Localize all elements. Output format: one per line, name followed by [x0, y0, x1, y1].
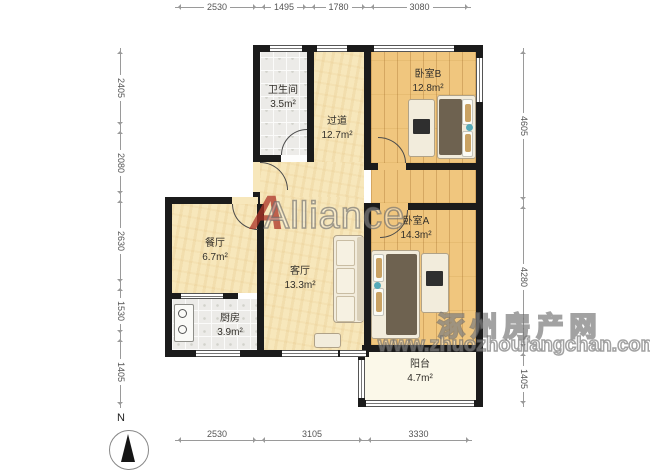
bedroom-b-cushion-1: [465, 104, 471, 122]
dim-left-4: 1530: [120, 285, 121, 336]
dim-left-1: 2405: [120, 48, 121, 128]
sofa-cushion-3: [336, 296, 355, 322]
dim-top-1: 2530: [175, 7, 259, 8]
alliance-watermark: Alliance: [264, 197, 405, 235]
bedroom-b-duvet: [439, 99, 462, 155]
bedroom-b-cushion-2: [465, 134, 471, 152]
dim-bottom-1: 2530: [175, 440, 259, 441]
kitchen-name: 厨房: [200, 312, 260, 326]
room-label-living: 客厅 13.3m²: [270, 265, 330, 293]
room-label-bedroom-b: 卧室B 12.8m²: [398, 68, 458, 96]
window-balcony-bottom: [366, 400, 474, 407]
dim-left-3-value: 2630: [116, 228, 126, 254]
hallway-name: 过道: [307, 115, 367, 129]
dim-top-2-value: 1495: [271, 2, 297, 12]
dim-top-4: 3080: [368, 7, 471, 8]
window-kitchen-bottom: [196, 350, 240, 357]
dim-left-5: 1405: [120, 336, 121, 408]
dim-right-3-value: 1405: [519, 365, 529, 391]
dim-bottom-3-value: 3330: [405, 429, 431, 439]
bedroom-b-door-opening: [378, 163, 406, 170]
bedroom-b-area: 12.8m²: [398, 82, 458, 96]
hallway-area: 12.7m²: [307, 129, 367, 143]
stove-burner-1: [178, 309, 187, 318]
bedroom-b-name: 卧室B: [398, 68, 458, 82]
bedroom-a-decor-dot: [374, 282, 381, 289]
bedroom-a-cushion-2: [376, 292, 382, 312]
floor-plan-canvas: 卫生间 3.5m² 过道 12.7m² 卧室B 12.8m² 卧室A 14.3m…: [0, 0, 650, 450]
dim-bottom-2-value: 3105: [299, 429, 325, 439]
room-label-hallway: 过道 12.7m²: [307, 115, 367, 143]
living-name: 客厅: [270, 265, 330, 279]
bedroom-b-decor-dot: [466, 124, 473, 131]
dim-left-3: 2630: [120, 197, 121, 285]
dim-bottom-3: 3330: [365, 440, 472, 441]
wall-kitchen-divider-right: [223, 293, 238, 299]
sofa-back: [357, 237, 364, 321]
dim-bottom-2: 3105: [259, 440, 365, 441]
dim-right-1: 4605: [523, 48, 524, 203]
bathroom-name: 卫生间: [253, 84, 313, 98]
balcony-area: 4.7m²: [390, 372, 450, 386]
dim-top-1-value: 2530: [204, 2, 230, 12]
sofa-cushion-1: [336, 240, 355, 266]
bedroom-b-tv: [413, 119, 430, 134]
dim-top-4-value: 3080: [406, 2, 432, 12]
wall-kitchen-divider-left: [172, 293, 181, 299]
north-arrow-icon: [121, 434, 135, 462]
window-hallway-top: [317, 45, 347, 52]
bathroom-door-opening: [281, 155, 307, 162]
dim-top-3: 1780: [309, 7, 368, 8]
kitchen-pass-through-window: [181, 293, 223, 299]
dining-name: 餐厅: [185, 237, 245, 251]
window-bathroom-top: [270, 45, 302, 52]
window-bedroom-b-right: [476, 58, 483, 102]
room-label-bathroom: 卫生间 3.5m²: [253, 84, 313, 112]
dim-top-3-value: 1780: [325, 2, 351, 12]
tv-stand: [314, 333, 341, 348]
bathroom-area: 3.5m²: [253, 98, 313, 112]
hallway-floor-top-arm: [314, 52, 364, 172]
room-label-kitchen: 厨房 3.9m²: [200, 312, 260, 340]
sofa-cushion-2: [336, 268, 355, 294]
stove-burner-2: [178, 325, 187, 334]
window-bedroom-b-top: [374, 45, 454, 52]
balcony-name: 阳台: [390, 358, 450, 372]
wall-bedroom-b-left: [364, 45, 371, 170]
dim-left-5-value: 1405: [116, 359, 126, 385]
dim-left-2: 2080: [120, 128, 121, 197]
room-label-balcony: 阳台 4.7m²: [390, 358, 450, 386]
dim-left-2-value: 2080: [116, 149, 126, 175]
dim-left-1-value: 2405: [116, 75, 126, 101]
room-label-dining: 餐厅 6.7m²: [185, 237, 245, 265]
living-area: 13.3m²: [270, 279, 330, 293]
dim-bottom-1-value: 2530: [204, 429, 230, 439]
dim-right-3: 1405: [523, 350, 524, 407]
kitchen-area: 3.9m²: [200, 326, 260, 340]
window-balcony-left: [358, 360, 365, 398]
balcony-door-opening: [340, 350, 366, 357]
bedroom-a-cushion-1: [376, 258, 382, 278]
dim-left-4-value: 1530: [116, 297, 126, 323]
dim-right-2-value: 4280: [519, 263, 529, 289]
bedroom-a-duvet: [386, 254, 417, 335]
wall-left-lower: [165, 197, 172, 357]
north-label: N: [117, 412, 125, 424]
window-living-bottom: [282, 350, 338, 357]
dim-top-2: 1495: [259, 7, 309, 8]
site-url-watermark: www.zhuozhoufangchan.com: [378, 334, 650, 357]
bedroom-a-tv: [426, 271, 443, 286]
dim-right-1-value: 4605: [519, 112, 529, 138]
dining-area: 6.7m²: [185, 251, 245, 265]
